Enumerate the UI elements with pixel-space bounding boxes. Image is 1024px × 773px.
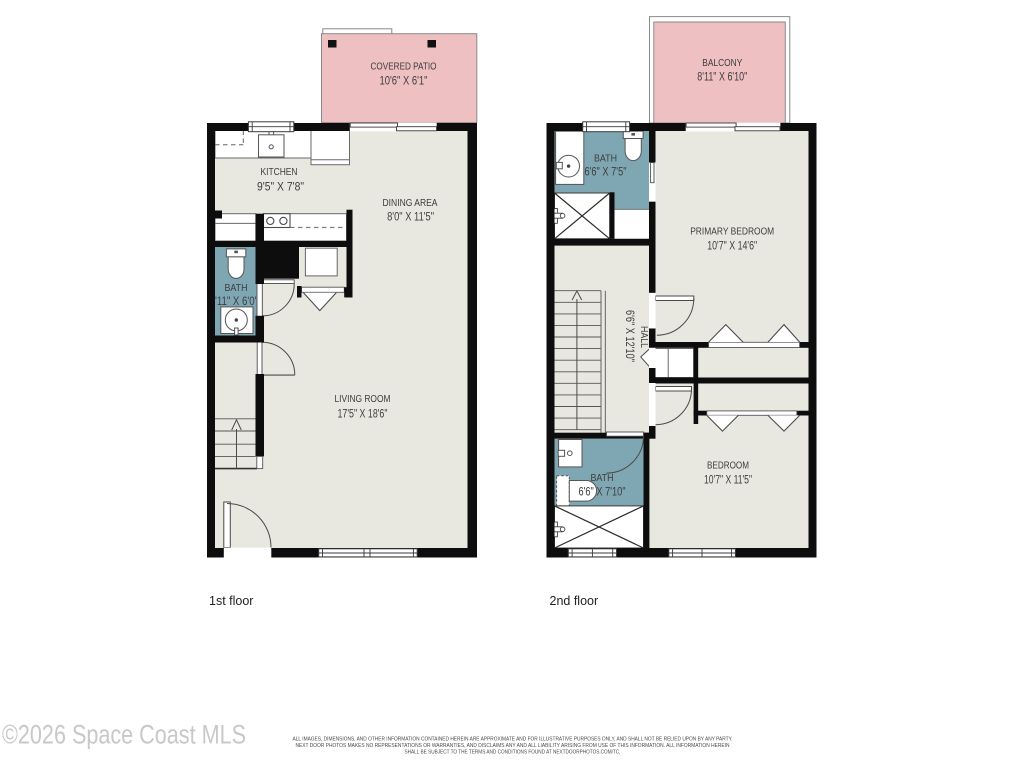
svg-text:PRIMARY BEDROOM: PRIMARY BEDROOM [690, 226, 774, 238]
svg-text:'11" X 6'0": '11" X 6'0" [215, 296, 258, 308]
svg-text:10'6" X 6'1": 10'6" X 6'1" [380, 76, 428, 88]
svg-text:BATH: BATH [591, 472, 614, 484]
svg-text:9'5" X 7'8": 9'5" X 7'8" [257, 182, 304, 194]
svg-text:10'7" X 14'6": 10'7" X 14'6" [707, 240, 757, 252]
svg-text:DINING AREA: DINING AREA [383, 197, 438, 209]
svg-text:BALCONY: BALCONY [702, 57, 742, 69]
svg-text:BATH: BATH [225, 282, 248, 294]
svg-text:SHALL BE SUBJECT TO THE TERMS: SHALL BE SUBJECT TO THE TERMS AND CONDIT… [405, 750, 621, 756]
svg-text:6'6" X 7'10": 6'6" X 7'10" [579, 486, 626, 498]
svg-text:6'6" X 12'10": 6'6" X 12'10" [623, 310, 635, 362]
svg-text:8'11" X 6'10": 8'11" X 6'10" [697, 72, 747, 84]
svg-text:2nd floor: 2nd floor [550, 594, 599, 608]
svg-text:NEXT DOOR PHOTOS MAKES NO REPR: NEXT DOOR PHOTOS MAKES NO REPRESENTATION… [296, 743, 730, 749]
svg-text:KITCHEN: KITCHEN [261, 166, 298, 178]
svg-text:8'0" X 11'5": 8'0" X 11'5" [387, 211, 434, 223]
svg-text:6'6" X 7'5": 6'6" X 7'5" [585, 167, 627, 179]
svg-text:LIVING ROOM: LIVING ROOM [335, 393, 391, 405]
svg-text:10'7" X 11'5": 10'7" X 11'5" [704, 475, 752, 487]
svg-text:©2026 Space Coast MLS: ©2026 Space Coast MLS [2, 720, 246, 750]
svg-text:HALL: HALL [638, 326, 650, 348]
svg-text:17'5" X 18'6": 17'5" X 18'6" [338, 408, 388, 420]
svg-text:ALL IMAGES, DIMENSIONS, AND OT: ALL IMAGES, DIMENSIONS, AND OTHER INFORM… [293, 737, 733, 743]
svg-text:1st floor: 1st floor [209, 594, 253, 608]
svg-text:COVERED PATIO: COVERED PATIO [371, 61, 437, 73]
svg-text:BEDROOM: BEDROOM [707, 459, 749, 471]
svg-text:BATH: BATH [594, 153, 617, 165]
